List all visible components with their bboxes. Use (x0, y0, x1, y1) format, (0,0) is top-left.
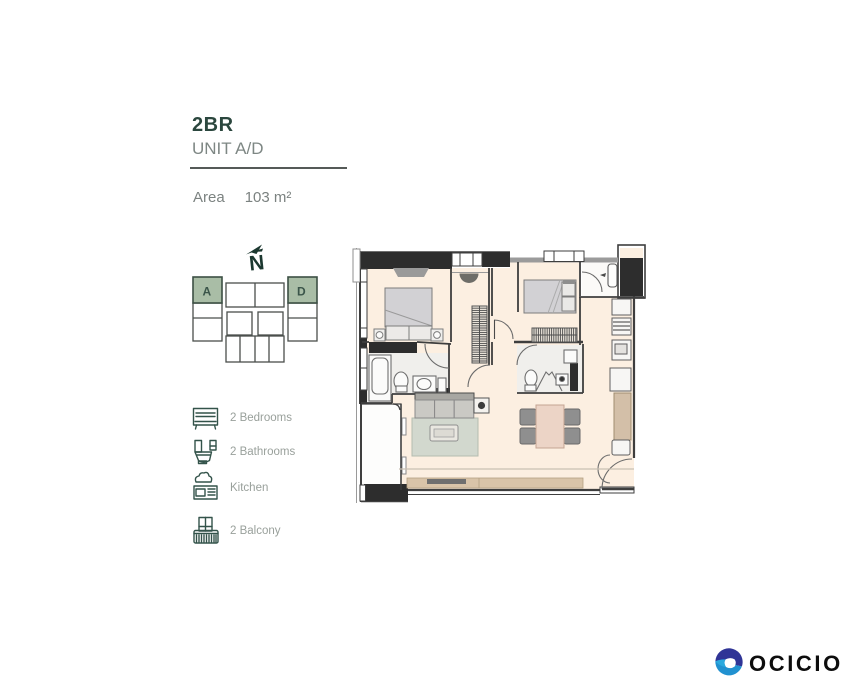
svg-text:N: N (248, 251, 265, 275)
svg-text:A: A (203, 285, 212, 299)
svg-text:D: D (297, 285, 306, 299)
